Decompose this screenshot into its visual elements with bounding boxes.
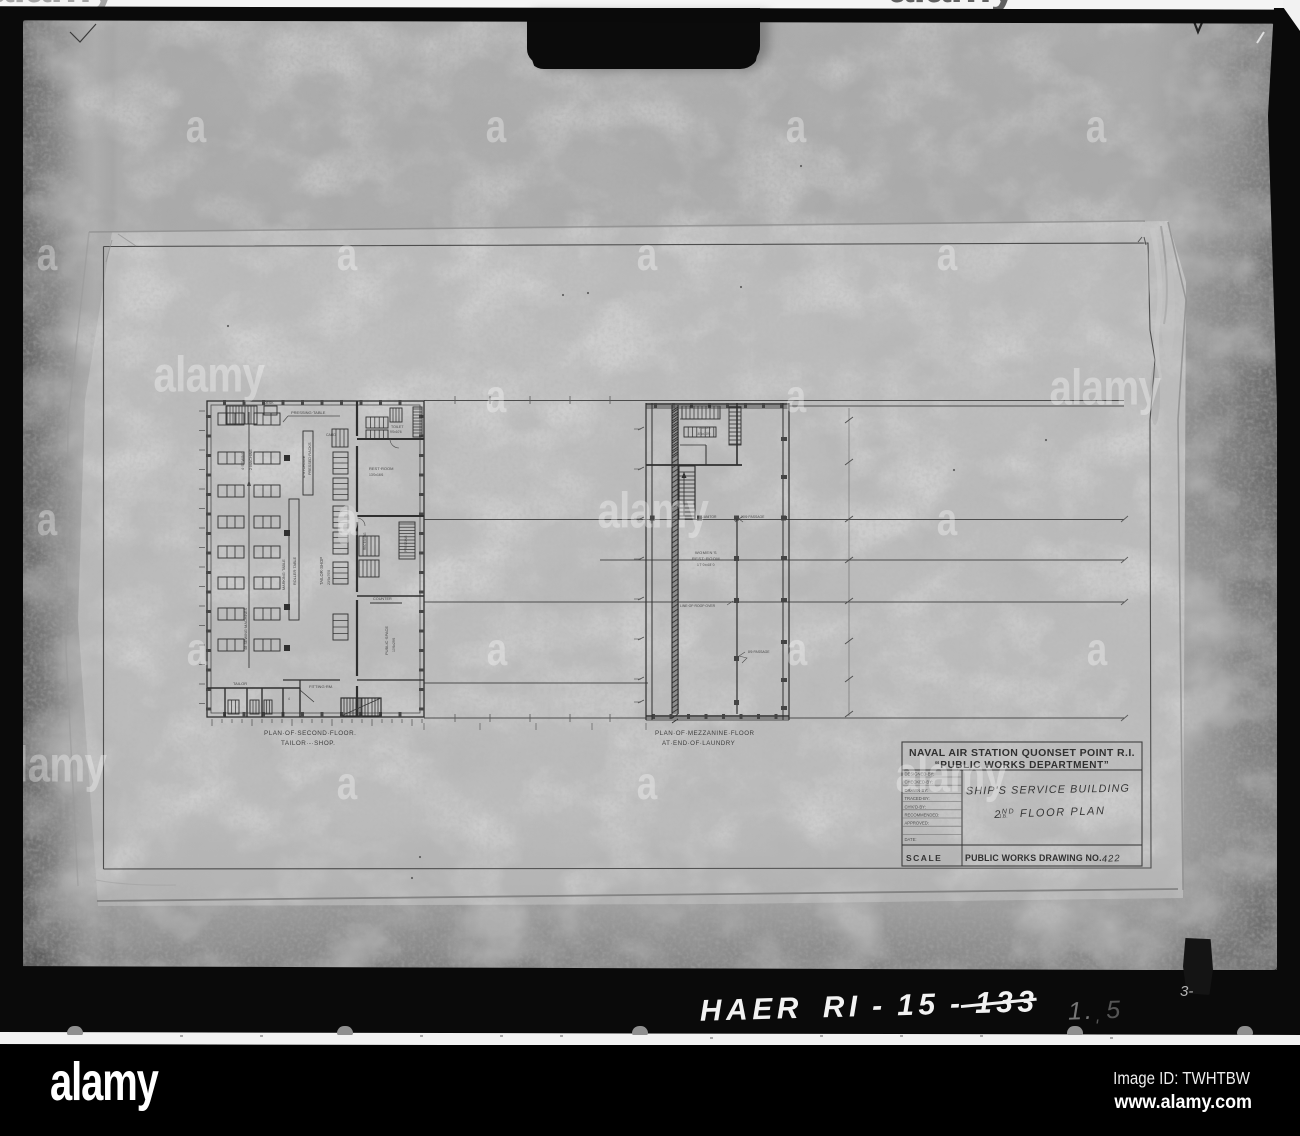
svg-text:TAILOR·-·SHOP.: TAILOR·-·SHOP.: [281, 740, 335, 747]
svg-text:4·SEWING: 4·SEWING: [241, 451, 245, 470]
svg-text:DESK: DESK: [264, 401, 274, 405]
svg-text:AT·END·OF·LAUNDRY: AT·END·OF·LAUNDRY: [662, 740, 735, 747]
svg-text:TAILOR: TAILOR: [233, 681, 247, 686]
svg-text:17'0x48'0: 17'0x48'0: [697, 563, 715, 567]
svg-text:PLAN·OF·SECOND·FLOOR.: PLAN·OF·SECOND·FLOOR.: [264, 730, 356, 737]
svg-text:PLAN·OF·MEZZANINE·FLOOR: PLAN·OF·MEZZANINE·FLOOR: [655, 730, 755, 737]
svg-text:10'6·PASSAGE: 10'6·PASSAGE: [741, 515, 765, 519]
svg-text:PRESSED·RACKS: PRESSED·RACKS: [308, 442, 312, 475]
svg-text:TAILOR·SHOP: TAILOR·SHOP: [319, 557, 324, 585]
svg-text:10'6x29'6: 10'6x29'6: [392, 638, 396, 652]
svg-text:RECOMMENDED:: RECOMMENDED:: [905, 813, 940, 818]
svg-text:TOILET: TOILET: [391, 425, 404, 429]
svg-text:4: 4: [288, 697, 290, 701]
svg-text:2ND FLOOR PLAN: 2ND FLOOR PLAN: [993, 805, 1106, 821]
svg-text:48·SEWING·MACHINES: 48·SEWING·MACHINES: [244, 607, 248, 650]
svg-text:9'0x10'6: 9'0x10'6: [390, 430, 402, 434]
svg-text:ROLLER·TABLE: ROLLER·TABLE: [293, 556, 297, 585]
svg-text:DATE:: DATE:: [905, 837, 917, 842]
svg-text:REST·ROOM: REST·ROOM: [369, 466, 393, 471]
svg-text:TOILET: TOILET: [698, 426, 712, 430]
svg-text:PRESSING·TABLE: PRESSING·TABLE: [291, 410, 326, 415]
svg-text:PUBLIC·SPACE: PUBLIC·SPACE: [384, 626, 389, 655]
svg-text:2·MACHINE: 2·MACHINE: [249, 449, 253, 470]
svg-text:MARKING·TABLE: MARKING·TABLE: [282, 559, 286, 590]
svg-text:FITTING·RM.: FITTING·RM.: [309, 684, 333, 689]
svg-text:COUNTER: COUNTER: [373, 597, 392, 601]
svg-text:13'0x16'6: 13'0x16'6: [369, 473, 383, 477]
svg-text:8'6·PASSAGE: 8'6·PASSAGE: [748, 650, 770, 654]
svg-text:PRESSING: PRESSING: [404, 535, 408, 552]
svg-text:LINE·OF·ROOF·OVER: LINE·OF·ROOF·OVER: [680, 604, 716, 608]
svg-text:&·STORAGE: &·STORAGE: [302, 455, 306, 478]
svg-text:WOMEN'S: WOMEN'S: [695, 550, 717, 555]
svg-text:SCALE: SCALE: [906, 853, 942, 863]
svg-text:PUBLIC WORKS DRAWING NO.: PUBLIC WORKS DRAWING NO.: [965, 853, 1102, 863]
svg-text:23'6x76'0: 23'6x76'0: [327, 570, 331, 585]
svg-text:16'6x10'0: 16'6x10'0: [696, 432, 710, 436]
svg-text:APPROVED:: APPROVED:: [905, 821, 929, 826]
svg-text:CH'K'D·BY:: CH'K'D·BY:: [905, 804, 926, 809]
svg-text:REST·ROOM: REST·ROOM: [692, 556, 720, 561]
svg-text:CARD: CARD: [326, 433, 336, 437]
svg-text:422: 422: [1102, 853, 1121, 865]
